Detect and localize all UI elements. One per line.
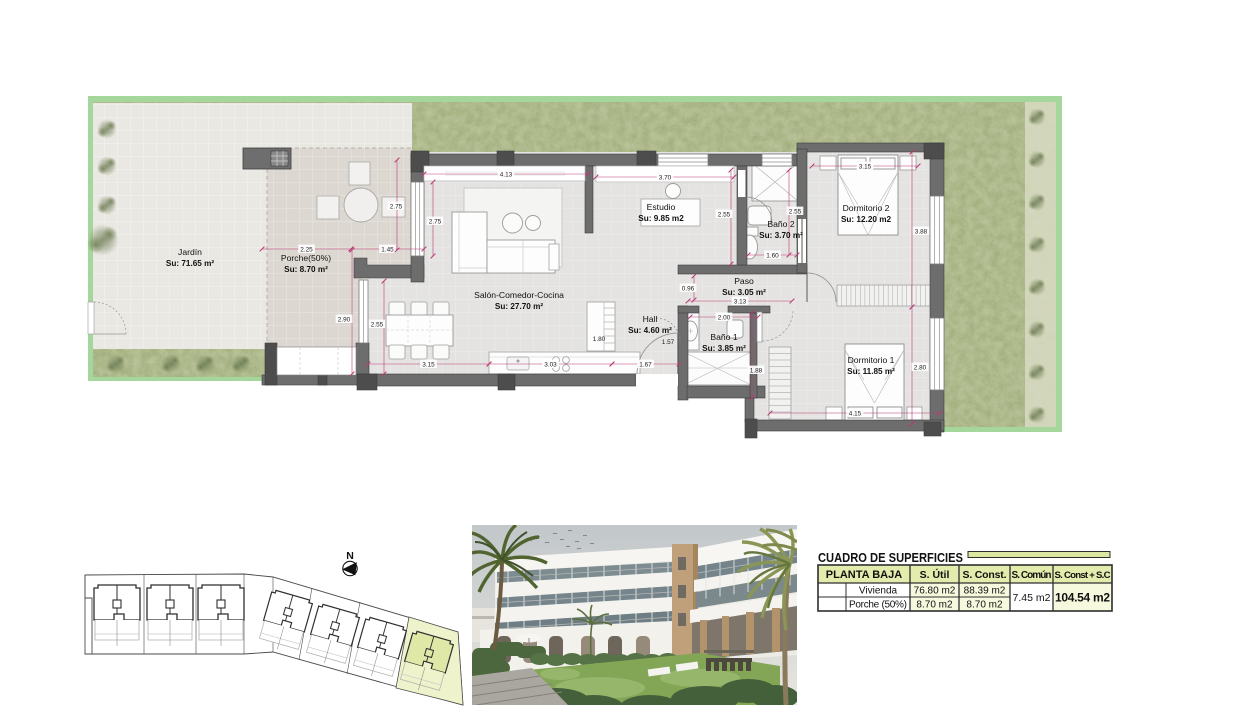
svg-text:2.90: 2.90: [338, 317, 351, 324]
svg-text:S. Útil: S. Útil: [920, 568, 950, 581]
svg-text:Estudio: Estudio: [647, 202, 676, 212]
svg-text:2.00: 2.00: [718, 315, 731, 322]
svg-text:76.80 m2: 76.80 m2: [914, 586, 956, 597]
svg-text:Su: 71.65 m²: Su: 71.65 m²: [166, 259, 215, 268]
svg-text:Su: 12.20 m2: Su: 12.20 m2: [841, 215, 892, 224]
svg-text:Su: 8.70 m²: Su: 8.70 m²: [284, 265, 328, 274]
svg-text:Porche(50%): Porche(50%): [281, 253, 331, 263]
svg-text:104.54 m2: 104.54 m2: [1055, 591, 1110, 605]
svg-text:Dormitorio 2: Dormitorio 2: [843, 203, 890, 213]
svg-text:3.03: 3.03: [544, 362, 557, 369]
svg-text:8.70 m2: 8.70 m2: [916, 600, 953, 611]
svg-text:Su: 27.70 m²: Su: 27.70 m²: [495, 302, 544, 311]
svg-text:1.57: 1.57: [662, 339, 675, 346]
svg-text:88.39 m2: 88.39 m2: [964, 586, 1006, 597]
svg-text:Su: 3.05 m²: Su: 3.05 m²: [722, 288, 766, 297]
svg-text:Baño 2: Baño 2: [767, 219, 794, 229]
svg-text:7.45 m2: 7.45 m2: [1013, 592, 1051, 604]
svg-text:Su: 11.85 m²: Su: 11.85 m²: [847, 367, 895, 376]
svg-text:CUADRO DE SUPERFICIES: CUADRO DE SUPERFICIES: [818, 550, 963, 565]
svg-text:2.75: 2.75: [429, 219, 442, 226]
svg-text:Baño 1: Baño 1: [710, 332, 737, 342]
svg-text:Dormitorio 1: Dormitorio 1: [848, 355, 895, 365]
svg-text:Su: 3.70 m²: Su: 3.70 m²: [759, 231, 803, 240]
svg-text:3.88: 3.88: [915, 229, 928, 236]
svg-text:3.13: 3.13: [734, 299, 747, 306]
svg-text:8.70 m2: 8.70 m2: [966, 600, 1003, 611]
svg-text:3.15: 3.15: [859, 164, 872, 171]
svg-text:Hall: Hall: [643, 314, 658, 324]
svg-text:1.45: 1.45: [381, 247, 394, 254]
svg-text:Su: 3.85 m²: Su: 3.85 m²: [702, 344, 746, 353]
svg-text:1.80: 1.80: [593, 336, 606, 343]
svg-text:Su: 4.60 m²: Su: 4.60 m²: [628, 326, 672, 335]
svg-text:S. Const + S.C: S. Const + S.C: [1055, 570, 1111, 581]
svg-text:4.13: 4.13: [500, 172, 513, 179]
svg-text:N: N: [346, 550, 354, 562]
svg-text:2.55: 2.55: [371, 322, 384, 329]
svg-text:Jardín: Jardín: [178, 247, 202, 257]
svg-text:4.15: 4.15: [849, 411, 862, 418]
svg-text:2.80: 2.80: [914, 365, 927, 372]
svg-text:S. Const.: S. Const.: [963, 569, 1007, 581]
svg-text:3.15: 3.15: [422, 362, 435, 369]
svg-text:2.75: 2.75: [390, 204, 403, 211]
svg-text:1.88: 1.88: [750, 368, 763, 375]
svg-text:0.96: 0.96: [682, 286, 695, 293]
svg-text:2.55: 2.55: [789, 209, 802, 216]
svg-text:Paso: Paso: [734, 276, 754, 286]
svg-text:Salón-Comedor-Cocina: Salón-Comedor-Cocina: [474, 290, 564, 300]
svg-text:S. Común: S. Común: [1012, 570, 1052, 581]
svg-text:1.67: 1.67: [639, 362, 652, 369]
svg-text:3.70: 3.70: [659, 175, 672, 182]
svg-text:PLANTA BAJA: PLANTA BAJA: [826, 569, 902, 581]
svg-text:Su: 9.85 m2: Su: 9.85 m2: [638, 214, 684, 223]
svg-text:Vivienda: Vivienda: [859, 586, 898, 597]
svg-text:2.55: 2.55: [718, 212, 731, 219]
svg-text:Porche (50%): Porche (50%): [849, 600, 907, 611]
svg-text:1.60: 1.60: [766, 253, 779, 260]
